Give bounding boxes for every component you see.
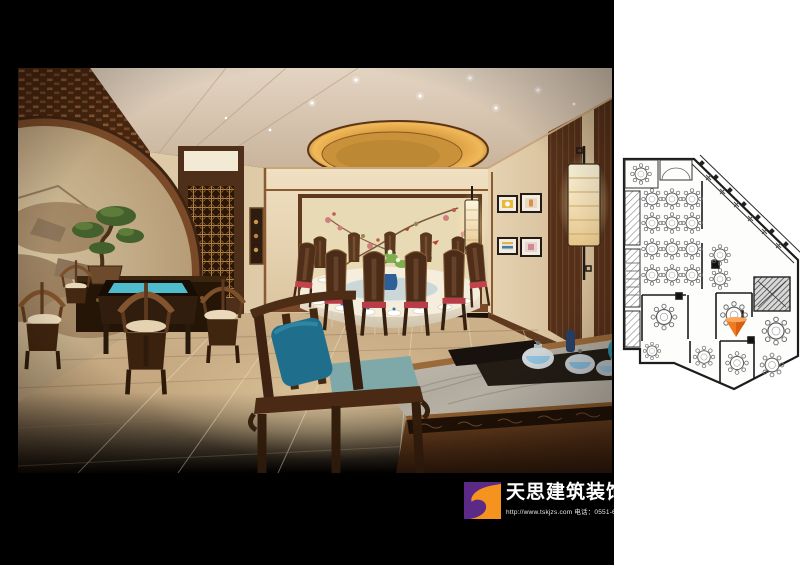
floor-plan <box>616 151 800 403</box>
presentation-canvas: 天思建筑装饰 http://www.tskjzs.com 电话：0551-655… <box>0 0 800 565</box>
company-logo: 天思建筑装饰 http://www.tskjzs.com 电话：0551-655… <box>464 482 614 522</box>
render-scene <box>18 68 612 473</box>
logo-icon <box>464 482 501 519</box>
floor-plan-panel <box>614 0 800 565</box>
render-photo <box>18 68 612 473</box>
vignette-overlay <box>18 68 612 473</box>
